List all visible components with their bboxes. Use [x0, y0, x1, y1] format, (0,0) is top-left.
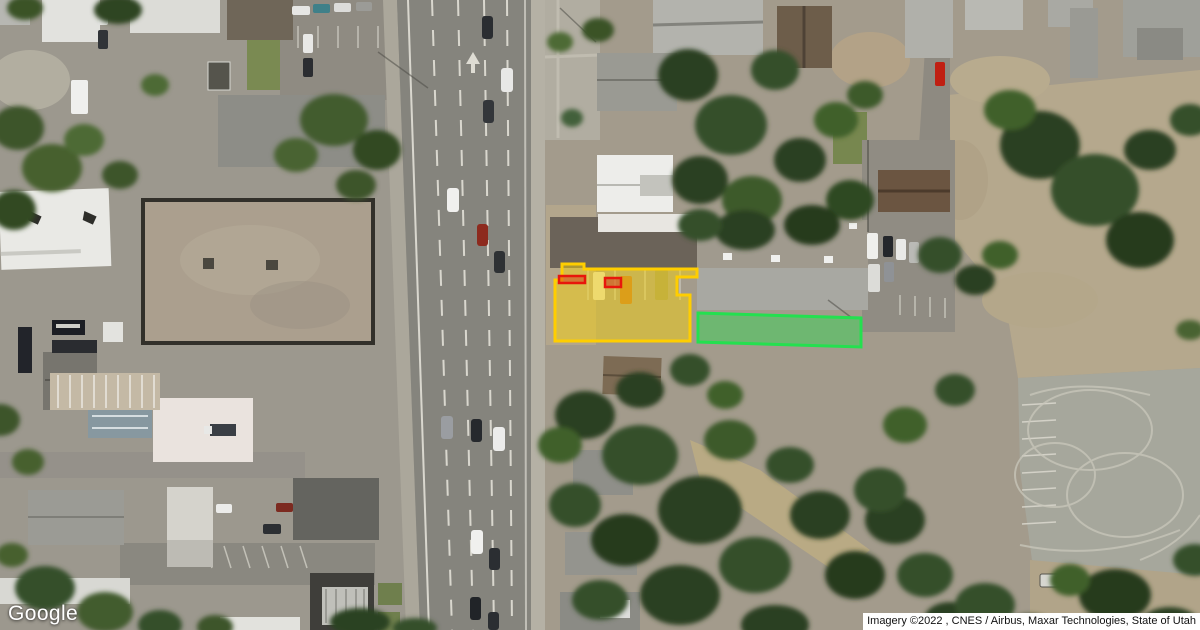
attribution-bar: Imagery ©2022 , CNES / Airbus, Maxar Tec… [863, 613, 1200, 630]
google-logo[interactable]: Google [8, 602, 78, 626]
main-road [397, 0, 531, 630]
red-box-overlay-b [605, 278, 621, 287]
attribution-text: Imagery ©2022 , CNES / Airbus, Maxar Tec… [867, 615, 1196, 627]
satellite-map [0, 0, 1200, 630]
red-box-overlay-a [559, 276, 585, 283]
green-parcel-overlay[interactable] [698, 313, 861, 347]
map-viewport[interactable]: Google Imagery ©2022 , CNES / Airbus, Ma… [0, 0, 1200, 630]
